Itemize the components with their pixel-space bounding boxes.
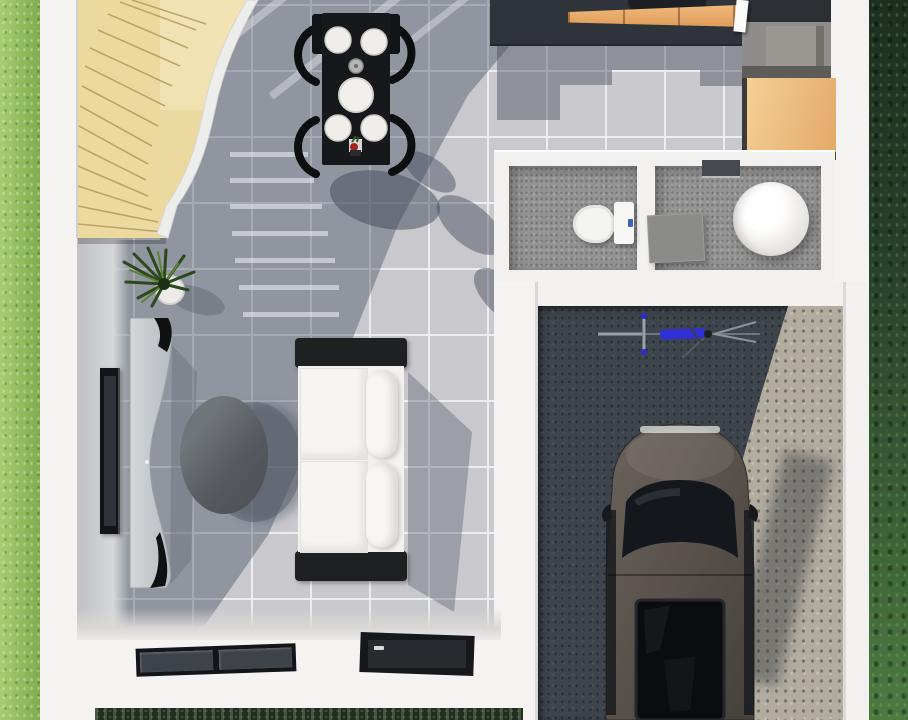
flush-button — [628, 219, 633, 227]
serving-bowl — [339, 78, 373, 112]
bike-seat — [704, 330, 712, 338]
sofa-bolster — [366, 370, 398, 458]
car-hood-highlight — [626, 429, 734, 481]
staircase — [60, 0, 270, 250]
plant-center — [158, 278, 170, 290]
sofa-bolster — [366, 462, 398, 548]
toilet-bowl — [573, 205, 615, 243]
bike-rear-fork — [714, 322, 756, 334]
car-side-glass-left — [606, 510, 616, 715]
window-pane — [140, 650, 214, 673]
console-knob — [145, 460, 149, 464]
sofa-arm-bottom — [295, 551, 407, 581]
window-pane — [219, 647, 293, 670]
bike-frame — [660, 328, 706, 340]
dining-set — [280, 0, 440, 200]
bike-rear-fork — [714, 334, 756, 342]
car — [600, 410, 760, 720]
sofa-arm-top — [295, 338, 407, 368]
vase-base — [350, 150, 361, 156]
grass-left — [0, 0, 40, 720]
countertop-appliance — [766, 26, 824, 71]
double-window — [136, 643, 297, 677]
tall-cabinet — [742, 78, 836, 160]
bike-grip — [641, 349, 647, 355]
hedge-strip — [95, 708, 523, 720]
small-bowl-center — [354, 64, 358, 68]
bicycle — [584, 310, 774, 362]
floorplan-render — [0, 0, 908, 720]
kitchen-counter-right — [742, 0, 831, 24]
entry-door-panel — [368, 640, 466, 668]
car-side-glass-right — [744, 510, 754, 715]
houseplant — [118, 246, 208, 326]
garage-top-wall — [494, 282, 875, 308]
bathroom-shelf — [702, 160, 740, 178]
sofa-cushion — [300, 368, 368, 460]
round-bathtub — [733, 182, 809, 256]
shower-mat — [647, 213, 705, 264]
sofa-cushion — [300, 461, 368, 553]
grass-right — [869, 0, 908, 720]
bike-grip — [641, 313, 647, 319]
stair-bottom-shadow — [78, 238, 166, 244]
door-handle — [374, 646, 384, 650]
console-top — [130, 318, 172, 588]
tv-screen — [104, 376, 116, 526]
coffee-table — [180, 396, 268, 514]
flower-vase — [350, 143, 358, 151]
